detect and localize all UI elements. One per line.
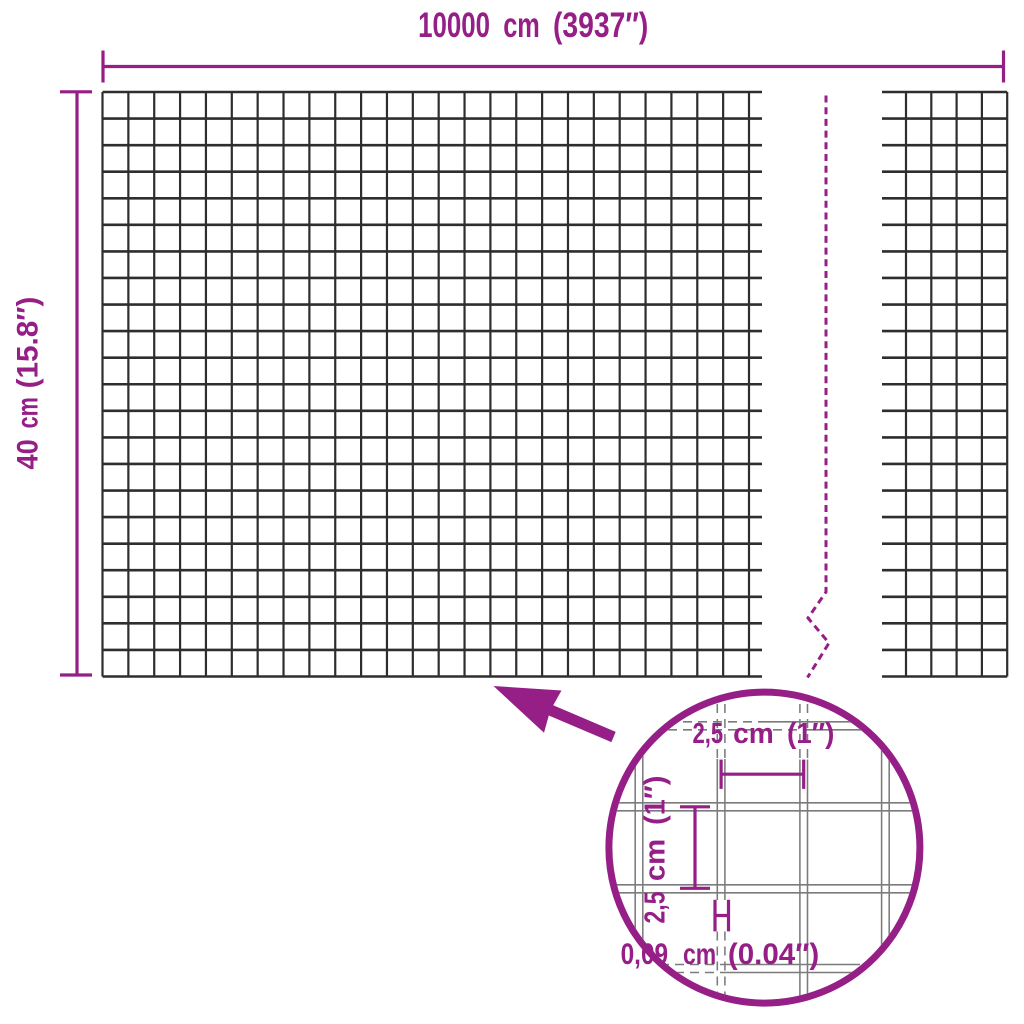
svg-text:40: 40: [12, 439, 45, 469]
svg-text:(15.8″): (15.8″): [12, 297, 45, 389]
svg-text:cm: cm: [683, 938, 716, 971]
svg-text:cm: cm: [503, 5, 540, 45]
svg-text:cm: cm: [640, 839, 672, 881]
svg-text:cm: cm: [733, 718, 774, 750]
svg-text:2,5: 2,5: [640, 892, 672, 924]
svg-text:cm: cm: [12, 397, 45, 428]
svg-text:(3937″): (3937″): [553, 5, 648, 45]
svg-text:(1″): (1″): [787, 718, 834, 750]
svg-text:(1″): (1″): [640, 776, 672, 825]
svg-text:2,5: 2,5: [693, 718, 724, 750]
svg-text:(0.04″): (0.04″): [728, 938, 819, 971]
svg-text:10000: 10000: [418, 5, 490, 45]
svg-text:0,09: 0,09: [621, 938, 669, 971]
